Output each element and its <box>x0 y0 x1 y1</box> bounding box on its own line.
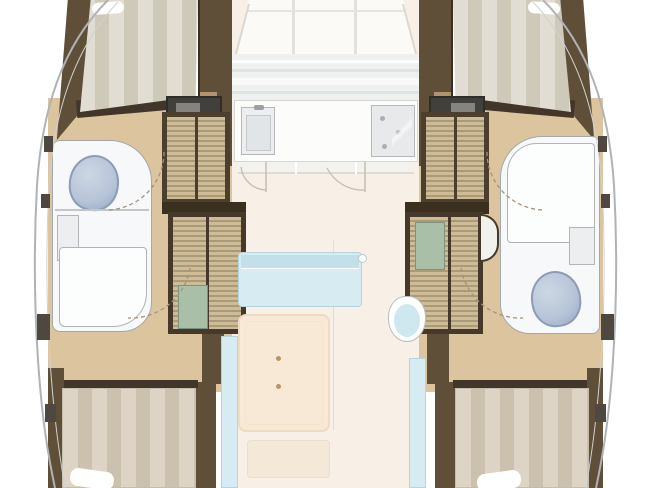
wardrobe-divider <box>448 217 451 329</box>
dining-table <box>238 314 330 432</box>
stbd-aft-berth <box>455 388 589 488</box>
port-deck-fitting <box>45 404 56 422</box>
windshield-line <box>232 78 420 85</box>
stbd-bathroom <box>500 136 600 334</box>
port-settee-strip <box>221 336 238 488</box>
port-vanity-divider <box>55 209 149 211</box>
stbd-deck-fitting <box>598 136 607 152</box>
port-deck-fitting <box>41 194 50 208</box>
sofa-backrest <box>241 255 359 269</box>
saloon-sofa <box>238 252 362 307</box>
windshield <box>232 54 420 100</box>
stbd-vanity-sink <box>569 227 595 265</box>
foredeck-divider <box>292 0 295 54</box>
windshield-line <box>232 69 420 72</box>
burner-dot <box>382 144 387 149</box>
port-deck-fitting <box>44 136 53 152</box>
stove-shine <box>392 110 412 154</box>
sofa-knob <box>358 254 367 263</box>
port-aft-wall-b <box>196 382 216 488</box>
stbd-forward-pillow <box>528 1 561 15</box>
wardrobe-divider <box>195 117 198 199</box>
catamaran-floorplan <box>0 0 651 488</box>
windshield-line <box>232 91 420 94</box>
stbd-aft-sill <box>453 380 587 388</box>
stbd-toilet <box>527 268 584 330</box>
sink-bowl <box>246 115 271 151</box>
wardrobe-divider <box>454 117 457 199</box>
stbd-deck-fitting <box>595 404 606 422</box>
port-bathroom <box>52 140 152 332</box>
burner-dot <box>380 116 385 121</box>
galley-stove <box>371 105 415 157</box>
port-deck-fitting <box>37 314 50 340</box>
stbd-deck-fitting <box>601 194 610 208</box>
foredeck-divider <box>354 0 357 54</box>
port-wardrobe-fwd <box>162 112 230 204</box>
galley-cabinets <box>238 162 414 174</box>
table-leg-dot <box>276 356 281 361</box>
foredeck <box>236 0 416 54</box>
cabinet-gap <box>295 162 297 174</box>
stbd-wardrobe-fwd <box>421 112 489 204</box>
stbd-aft-wall-c <box>587 368 603 488</box>
aft-bench <box>247 440 330 478</box>
port-aft-sill <box>64 380 198 388</box>
stbd-aft-wall-a <box>427 334 449 384</box>
port-shower <box>59 247 147 327</box>
windshield-line <box>232 60 420 63</box>
port-glass-door <box>178 285 208 329</box>
stbd-glass-door <box>415 222 445 270</box>
foredeck-seam <box>236 10 416 12</box>
stbd-deck-fitting <box>601 314 614 340</box>
port-wardrobe-aft <box>168 212 246 334</box>
faucet-icon <box>254 105 264 110</box>
swivel-chair <box>388 296 426 342</box>
cabinet-gap <box>355 162 357 174</box>
chair-cushion <box>394 304 420 337</box>
galley-counter <box>234 100 418 162</box>
stbd-settee-strip <box>409 358 426 488</box>
table-leg-dot <box>276 384 281 389</box>
table-inner-line <box>245 321 323 425</box>
port-forward-pillow <box>92 1 125 15</box>
galley-sink <box>241 107 275 155</box>
port-toilet <box>65 152 122 214</box>
stbd-aft-wall-b <box>435 382 455 488</box>
